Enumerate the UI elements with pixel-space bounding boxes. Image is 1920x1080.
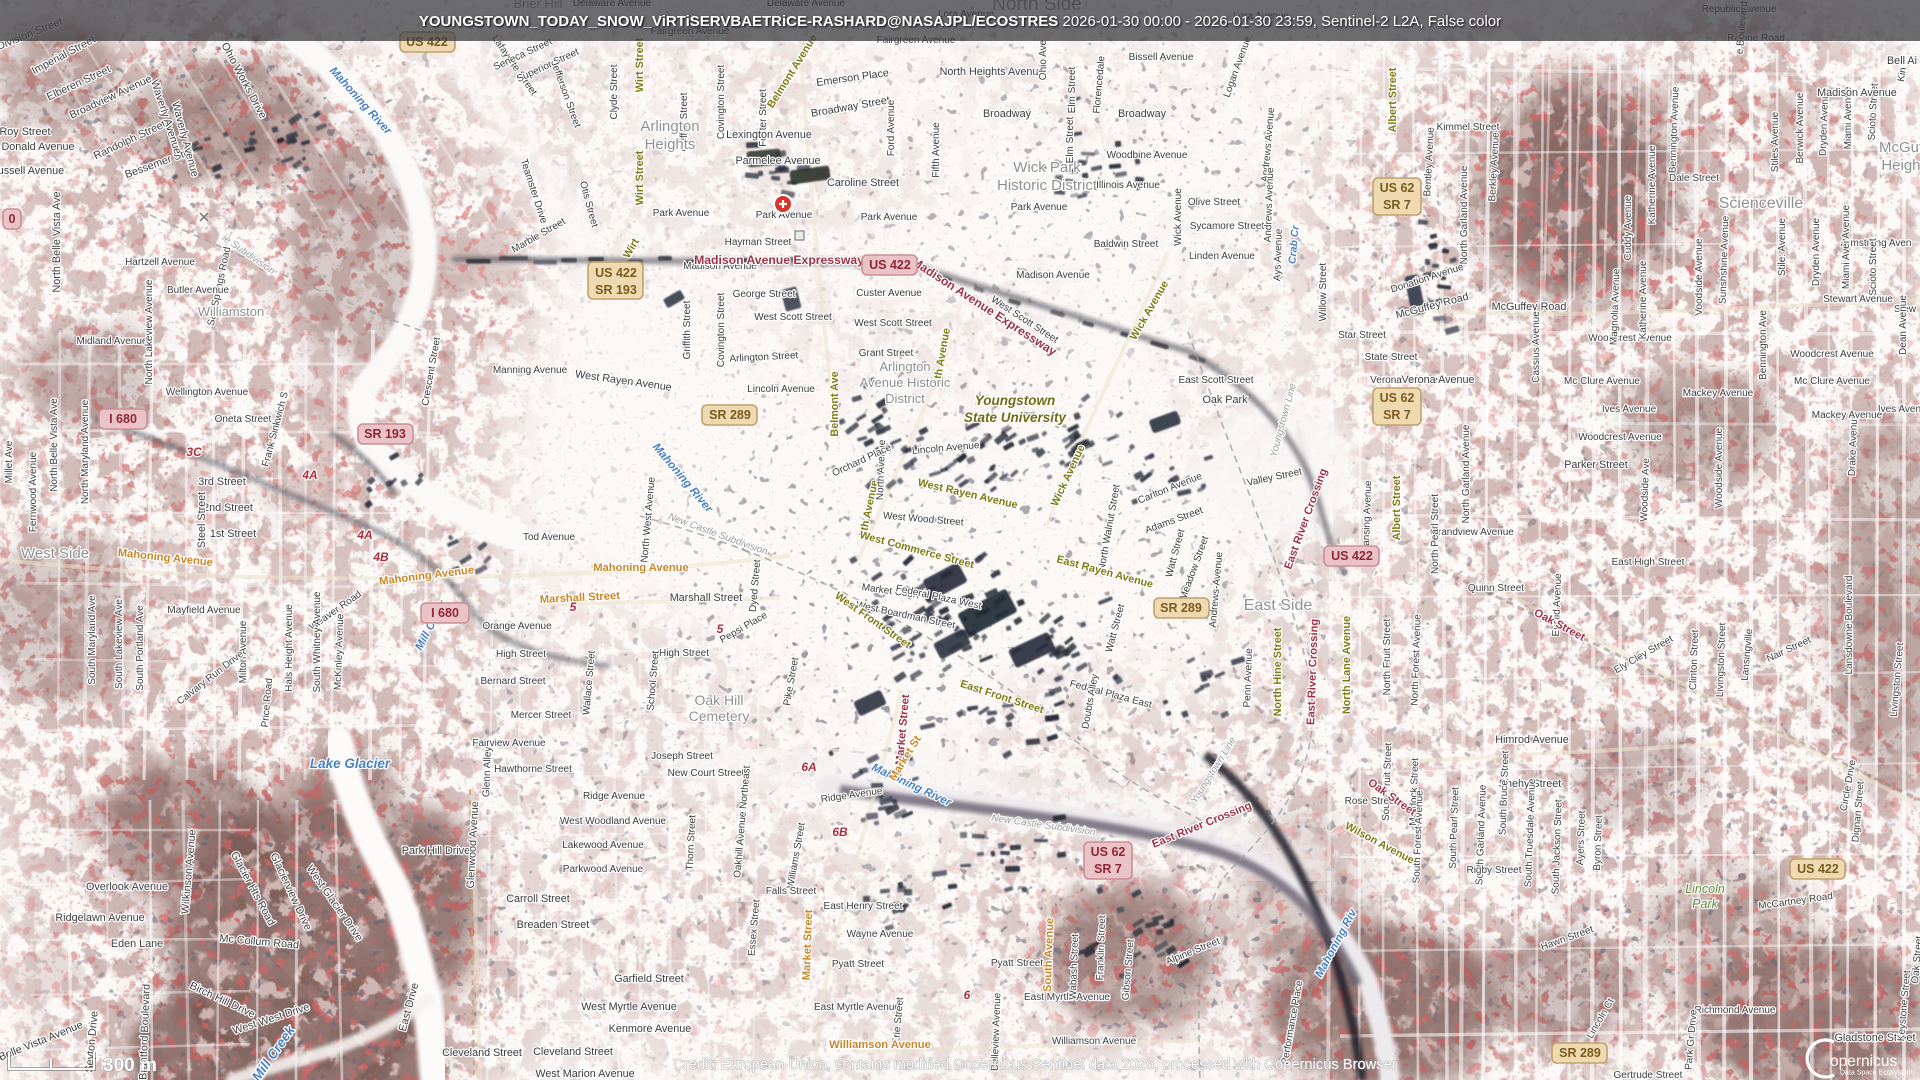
svg-text:Bernard Street: Bernard Street bbox=[480, 676, 545, 687]
svg-text:McGuffey Road: McGuffey Road bbox=[1492, 301, 1567, 313]
svg-text:Verona Avenue: Verona Avenue bbox=[1401, 374, 1474, 386]
svg-text:Scienceville: Scienceville bbox=[1719, 195, 1804, 212]
svg-text:Millet Ave: Millet Ave bbox=[4, 440, 15, 483]
svg-text:Park Hill Drive: Park Hill Drive bbox=[402, 845, 470, 857]
svg-text:High Street: High Street bbox=[659, 648, 709, 659]
svg-text:US 422: US 422 bbox=[1797, 862, 1839, 876]
svg-text:Gertrude Street: Gertrude Street bbox=[1614, 1070, 1683, 1080]
svg-text:Breaden Street: Breaden Street bbox=[517, 919, 590, 931]
svg-text:Elm Street: Elm Street bbox=[1067, 66, 1078, 113]
svg-text:East Henry Street: East Henry Street bbox=[824, 901, 903, 912]
svg-text:SR 289: SR 289 bbox=[1160, 601, 1202, 615]
svg-text:Russell Avenue: Russell Avenue bbox=[0, 165, 64, 177]
svg-text:US 422: US 422 bbox=[1331, 549, 1373, 563]
svg-text:I 680: I 680 bbox=[431, 606, 459, 620]
svg-text:Grandview Avenue: Grandview Avenue bbox=[1430, 527, 1514, 538]
svg-text:Oneta Street: Oneta Street bbox=[215, 414, 272, 425]
svg-text:Lake Glacier: Lake Glacier bbox=[310, 756, 391, 771]
svg-text:SR 289: SR 289 bbox=[709, 408, 751, 422]
svg-text:Illinois Avenue: Illinois Avenue bbox=[1096, 180, 1160, 191]
svg-text:Ford Avenue: Ford Avenue bbox=[886, 99, 897, 156]
svg-text:Manning Avenue: Manning Avenue bbox=[493, 365, 568, 376]
svg-text:Clinton Street: Clinton Street bbox=[1688, 629, 1701, 690]
svg-text:Lakewood Avenue: Lakewood Avenue bbox=[562, 840, 644, 851]
svg-text:East Side: East Side bbox=[1244, 597, 1313, 614]
svg-text:5: 5 bbox=[717, 622, 724, 636]
svg-text:Park Avenue: Park Avenue bbox=[1011, 202, 1068, 213]
svg-text:3C: 3C bbox=[186, 445, 202, 459]
svg-text:West Woodland Avenue: West Woodland Avenue bbox=[560, 816, 667, 827]
svg-text:Parker Street: Parker Street bbox=[1564, 459, 1628, 471]
svg-text:Richmond Avenue: Richmond Avenue bbox=[1695, 1005, 1776, 1016]
svg-text:Linden Avenue: Linden Avenue bbox=[1189, 251, 1255, 262]
svg-text:Tod Avenue: Tod Avenue bbox=[523, 532, 576, 543]
svg-text:Bennington Ave: Bennington Ave bbox=[1758, 310, 1769, 380]
svg-text:Joseph Street: Joseph Street bbox=[651, 751, 713, 762]
svg-text:East Myrtle Avenue: East Myrtle Avenue bbox=[814, 1002, 900, 1013]
svg-text:Albert Street: Albert Street bbox=[1391, 475, 1403, 540]
svg-text:Lexington Avenue: Lexington Avenue bbox=[726, 129, 812, 141]
svg-text:Sycamore Street: Sycamore Street bbox=[1190, 221, 1265, 232]
svg-text:Woodcrest Avenue: Woodcrest Avenue bbox=[1578, 432, 1662, 443]
svg-text:4B: 4B bbox=[372, 550, 389, 564]
svg-text:Bell Ai: Bell Ai bbox=[1887, 55, 1917, 67]
svg-text:Roy Street: Roy Street bbox=[0, 126, 51, 138]
svg-text:Mercer Street: Mercer Street bbox=[511, 710, 572, 721]
svg-text:Ayers Street: Ayers Street bbox=[1575, 810, 1588, 865]
svg-text:SR 289: SR 289 bbox=[1559, 1046, 1601, 1060]
svg-text:Madison Avenue: Madison Avenue bbox=[1016, 270, 1090, 281]
svg-text:North Lane Avenue: North Lane Avenue bbox=[1341, 616, 1353, 714]
svg-text:Katherine Avenue: Katherine Avenue bbox=[1647, 145, 1658, 224]
svg-text:Eden Lane: Eden Lane bbox=[111, 938, 163, 950]
svg-text:Scioto Street: Scioto Street bbox=[1868, 238, 1879, 295]
svg-text:Himrod Avenue: Himrod Avenue bbox=[1495, 734, 1569, 746]
svg-text:North Hine Street: North Hine Street bbox=[1272, 627, 1284, 716]
svg-text:Kimmel Street: Kimmel Street bbox=[1437, 122, 1500, 133]
svg-text:West Scott Street: West Scott Street bbox=[754, 312, 832, 323]
svg-text:6B: 6B bbox=[832, 825, 848, 839]
svg-text:Lansdowne Boulevard: Lansdowne Boulevard bbox=[1844, 576, 1855, 675]
svg-text:Madison Avenue Expressway: Madison Avenue Expressway bbox=[694, 253, 864, 267]
svg-text:Wick Avenue: Wick Avenue bbox=[1173, 188, 1184, 246]
svg-text:Clyde Street: Clyde Street bbox=[609, 64, 620, 119]
svg-text:SR 7: SR 7 bbox=[1383, 408, 1411, 422]
svg-text:Market Street: Market Street bbox=[801, 909, 815, 981]
svg-text:High Street: High Street bbox=[496, 649, 546, 660]
svg-text:Youngstown: Youngstown bbox=[975, 393, 1056, 408]
svg-text:SR 7: SR 7 bbox=[1383, 198, 1411, 212]
svg-text:Steel Street: Steel Street bbox=[196, 492, 208, 548]
svg-text:Ridge Avenue: Ridge Avenue bbox=[583, 791, 646, 802]
svg-text:Mackey Avenue: Mackey Avenue bbox=[1683, 388, 1754, 399]
svg-text:North Heights Avenue: North Heights Avenue bbox=[940, 66, 1045, 78]
svg-text:Butler Avenue: Butler Avenue bbox=[167, 285, 230, 296]
svg-text:Hawthorne Street: Hawthorne Street bbox=[494, 764, 572, 775]
svg-text:McGuff: McGuff bbox=[1879, 139, 1920, 156]
svg-text:Historic District: Historic District bbox=[997, 177, 1098, 194]
svg-text:South Portland Ave: South Portland Ave bbox=[135, 605, 146, 691]
svg-text:Hals Height Avenue: Hals Height Avenue bbox=[284, 604, 295, 692]
svg-text:Carroll Street: Carroll Street bbox=[506, 893, 570, 905]
svg-text:Elm Street: Elm Street bbox=[1065, 116, 1076, 163]
svg-text:Stile: Avenue: Stile: Avenue bbox=[1777, 217, 1788, 276]
svg-text:Williamston: Williamston bbox=[198, 304, 264, 319]
svg-text:Credit: European Union, contai: Credit: European Union, contains modifie… bbox=[673, 1057, 1396, 1073]
svg-text:Wirt Street: Wirt Street bbox=[634, 150, 646, 205]
svg-text:Falls Street: Falls Street bbox=[766, 886, 817, 897]
svg-text:US 422: US 422 bbox=[595, 266, 637, 280]
svg-text:Berwick Avenue: Berwick Avenue bbox=[1795, 92, 1806, 163]
svg-text:State University: State University bbox=[964, 410, 1068, 425]
svg-text:New Court Street: New Court Street bbox=[668, 768, 745, 779]
svg-text:Kenmore Avenue: Kenmore Avenue bbox=[609, 1023, 692, 1035]
svg-text:Arlington: Arlington bbox=[879, 359, 930, 374]
svg-text:US 62: US 62 bbox=[1380, 181, 1415, 195]
svg-text:North Maryland Avenue: North Maryland Avenue bbox=[80, 399, 91, 504]
svg-text:South Whitney Avenue: South Whitney Avenue bbox=[312, 591, 323, 692]
svg-text:North Belle Vista Ave: North Belle Vista Ave bbox=[49, 398, 60, 492]
svg-text:Glenn Alley: Glenn Alley bbox=[481, 746, 494, 797]
svg-text:Cassius Avenue: Cassius Avenue bbox=[1531, 311, 1542, 383]
svg-text:North Lakeview Avenue: North Lakeview Avenue bbox=[144, 279, 155, 384]
svg-text:Stewart Avenue: Stewart Avenue bbox=[1823, 294, 1893, 305]
svg-text:Albert Street: Albert Street bbox=[1387, 67, 1399, 132]
svg-text:Mackey Avenue: Mackey Avenue bbox=[1812, 410, 1883, 421]
svg-text:North Garland Avenue: North Garland Avenue bbox=[1459, 165, 1470, 264]
svg-text:Woodside Ave: Woodside Ave bbox=[1639, 458, 1652, 522]
svg-text:Orange Avenue: Orange Avenue bbox=[482, 621, 552, 632]
svg-text:Mahoning Avenue: Mahoning Avenue bbox=[593, 562, 689, 574]
svg-text:Woodcrest Avenue: Woodcrest Avenue bbox=[1790, 349, 1874, 360]
svg-text:North Garland Avenue: North Garland Avenue bbox=[1461, 424, 1472, 523]
svg-text:I 680: I 680 bbox=[109, 412, 137, 426]
svg-text:Avenue Historic: Avenue Historic bbox=[860, 375, 951, 390]
svg-text:Cleveland Street: Cleveland Street bbox=[533, 1046, 613, 1058]
svg-text:Dale Street: Dale Street bbox=[1669, 173, 1719, 184]
svg-text:Caroline Street: Caroline Street bbox=[827, 177, 899, 189]
svg-text:Garfield Street: Garfield Street bbox=[614, 973, 684, 985]
svg-text:Cleveland Street: Cleveland Street bbox=[442, 1047, 522, 1059]
svg-text:Ives Avenue: Ives Avenue bbox=[1602, 404, 1657, 415]
svg-text:Byron Street: Byron Street bbox=[1592, 815, 1605, 871]
svg-text:5: 5 bbox=[570, 600, 577, 614]
svg-text:opernicus: opernicus bbox=[1830, 1053, 1897, 1070]
svg-text:4A: 4A bbox=[301, 468, 317, 482]
svg-text:Park Avenue: Park Avenue bbox=[653, 208, 710, 219]
svg-text:Oak Hill: Oak Hill bbox=[694, 692, 743, 708]
svg-text:North Fruit Street: North Fruit Street bbox=[1382, 618, 1393, 695]
svg-text:Midland Avenue: Midland Avenue bbox=[77, 336, 148, 347]
svg-text:North Belle Vista Ave: North Belle Vista Ave bbox=[51, 191, 63, 292]
svg-text:Mc Clure Avenue: Mc Clure Avenue bbox=[1794, 376, 1870, 387]
svg-text:SR 7: SR 7 bbox=[1094, 862, 1122, 876]
svg-text:Fifth Avenue: Fifth Avenue bbox=[931, 122, 942, 178]
svg-text:Fernwood Avenue: Fernwood Avenue bbox=[28, 451, 39, 532]
svg-text:Overlook Avenue: Overlook Avenue bbox=[86, 881, 168, 893]
svg-text:Williamson Avenue: Williamson Avenue bbox=[829, 1039, 931, 1051]
svg-text:Williamson Avenue: Williamson Avenue bbox=[1052, 1036, 1137, 1047]
svg-text:Katherine Avenue: Katherine Avenue bbox=[1638, 260, 1649, 339]
svg-text:West Side: West Side bbox=[21, 545, 89, 562]
svg-text:Donald Avenue: Donald Avenue bbox=[1, 141, 74, 153]
svg-text:South Lakeview Ave: South Lakeview Ave bbox=[114, 599, 125, 689]
svg-text:Height: Height bbox=[1881, 157, 1920, 174]
svg-text:Miami Avei Avenue: Miami Avei Avenue bbox=[1841, 205, 1852, 290]
svg-text:300 m: 300 m bbox=[103, 1055, 157, 1076]
svg-text:Drake Avenue: Drake Avenue bbox=[1847, 413, 1860, 476]
svg-text:Dryden Avenue: Dryden Avenue bbox=[1811, 217, 1822, 286]
svg-text:Data Space Ecosystem: Data Space Ecosystem bbox=[1840, 1070, 1913, 1077]
svg-text:North Pearl Street: North Pearl Street bbox=[1430, 494, 1441, 574]
svg-text:Ridgelawn Avenue: Ridgelawn Avenue bbox=[55, 912, 144, 924]
svg-text:District: District bbox=[885, 391, 925, 406]
svg-text:Voodside Avenue: Voodside Avenue bbox=[1694, 238, 1705, 316]
svg-text:Bissell Avenue: Bissell Avenue bbox=[1129, 52, 1194, 63]
svg-text:Lincoln Avenue: Lincoln Avenue bbox=[747, 384, 815, 395]
svg-text:Belmont Ave: Belmont Ave bbox=[829, 371, 841, 436]
svg-text:Dean Avenue: Dean Avenue bbox=[1898, 295, 1909, 355]
svg-text:Madison Avenue: Madison Avenue bbox=[1817, 87, 1897, 99]
svg-text:South Maryland Ave: South Maryland Ave bbox=[87, 595, 98, 685]
svg-text:Wellington Avenue: Wellington Avenue bbox=[166, 387, 249, 398]
svg-text:Covington Street: Covington Street bbox=[716, 293, 727, 368]
svg-text:Willow Street: Willow Street bbox=[1318, 263, 1329, 322]
svg-text:Park Avenue: Park Avenue bbox=[861, 212, 918, 223]
svg-text:Ohio Ave: Ohio Ave bbox=[1038, 39, 1049, 80]
svg-text:West Myrtle Avenue: West Myrtle Avenue bbox=[581, 1001, 677, 1013]
svg-text:Wabash Street: Wabash Street bbox=[1068, 934, 1081, 1000]
svg-text:US 62: US 62 bbox=[1380, 391, 1415, 405]
svg-text:East Scott Street: East Scott Street bbox=[1178, 375, 1253, 386]
svg-text:Woodside Avenue: Woodside Avenue bbox=[1714, 427, 1725, 508]
svg-text:George Street: George Street bbox=[733, 289, 796, 300]
svg-text:Hartzell Avenue: Hartzell Avenue bbox=[125, 257, 195, 268]
svg-text:6: 6 bbox=[964, 988, 971, 1002]
svg-text:West Scott Street: West Scott Street bbox=[854, 318, 932, 329]
svg-text:Franklin Street: Franklin Street bbox=[1095, 915, 1108, 981]
svg-text:Quinn Street: Quinn Street bbox=[1468, 583, 1524, 594]
svg-text:Parkwood Avenue: Parkwood Avenue bbox=[563, 864, 644, 875]
svg-text:YOUNGSTOWN_TODAY_SNOW_ViRTiSER: YOUNGSTOWN_TODAY_SNOW_ViRTiSERVBAETRiCE-… bbox=[419, 13, 1501, 30]
svg-text:Wayne Avenue: Wayne Avenue bbox=[847, 929, 914, 940]
svg-text:Ays Avenue: Ays Avenue bbox=[1272, 228, 1285, 281]
svg-text:Rigby Street: Rigby Street bbox=[1466, 865, 1521, 876]
svg-text:Penn Avenue: Penn Avenue bbox=[1242, 648, 1255, 708]
svg-text:Fairview Avenue: Fairview Avenue bbox=[472, 738, 546, 749]
svg-text:Hayman Street: Hayman Street bbox=[725, 237, 792, 248]
svg-text:Mayfield Avenue: Mayfield Avenue bbox=[167, 605, 241, 616]
svg-text:Baldwin Street: Baldwin Street bbox=[1094, 239, 1159, 250]
svg-text:Custer Avenue: Custer Avenue bbox=[856, 288, 922, 299]
svg-text:Mc Clure Avenue: Mc Clure Avenue bbox=[1564, 376, 1640, 387]
svg-text:Park: Park bbox=[1692, 897, 1718, 911]
svg-text:Ives Avenue: Ives Avenue bbox=[1878, 404, 1920, 415]
svg-text:3rd Street: 3rd Street bbox=[198, 476, 245, 488]
svg-text:Star Street: Star Street bbox=[1338, 330, 1386, 341]
svg-text:0: 0 bbox=[9, 212, 16, 226]
svg-text:Pyatt Street: Pyatt Street bbox=[991, 958, 1043, 969]
svg-text:Woodbine Avenue: Woodbine Avenue bbox=[1107, 150, 1188, 161]
svg-text:Marshall Street: Marshall Street bbox=[670, 592, 743, 604]
svg-text:Pyatt Street: Pyatt Street bbox=[832, 959, 884, 970]
svg-text:1st Street: 1st Street bbox=[210, 528, 256, 540]
svg-text:US 422: US 422 bbox=[869, 258, 911, 272]
svg-text:West Marion Avenue: West Marion Avenue bbox=[535, 1068, 634, 1080]
svg-text:Cemetery: Cemetery bbox=[689, 708, 750, 724]
svg-text:Grant Street: Grant Street bbox=[859, 348, 914, 359]
svg-text:Heights: Heights bbox=[645, 136, 696, 153]
svg-text:SR 193: SR 193 bbox=[595, 283, 637, 297]
svg-text:East High Street: East High Street bbox=[1612, 557, 1685, 568]
svg-text:US 62: US 62 bbox=[1091, 845, 1126, 859]
svg-text:6A: 6A bbox=[801, 760, 816, 774]
svg-text:Stiles Avenue: Stiles Avenue bbox=[1770, 111, 1781, 172]
svg-text:2nd Street: 2nd Street bbox=[203, 502, 253, 514]
svg-text:Oak Park: Oak Park bbox=[1202, 394, 1248, 406]
svg-text:Lincoln: Lincoln bbox=[1685, 882, 1725, 896]
svg-text:Cuddy Avenue: Cuddy Avenue bbox=[1623, 195, 1634, 260]
svg-text:Wirt Street: Wirt Street bbox=[634, 37, 646, 92]
svg-text:Griffith Street: Griffith Street bbox=[682, 300, 693, 359]
svg-text:4A: 4A bbox=[356, 528, 372, 542]
svg-text:SR 193: SR 193 bbox=[364, 427, 406, 441]
svg-text:Woodcrest Avenue: Woodcrest Avenue bbox=[1588, 333, 1672, 344]
svg-text:Parmelee Avenue: Parmelee Avenue bbox=[735, 155, 820, 167]
svg-text:Olive Street: Olive Street bbox=[1188, 197, 1240, 208]
svg-text:Broadway: Broadway bbox=[983, 108, 1032, 120]
svg-text:State Street: State Street bbox=[1365, 352, 1418, 363]
svg-text:Arlington: Arlington bbox=[640, 118, 699, 135]
svg-text:Broadway: Broadway bbox=[1118, 108, 1167, 120]
